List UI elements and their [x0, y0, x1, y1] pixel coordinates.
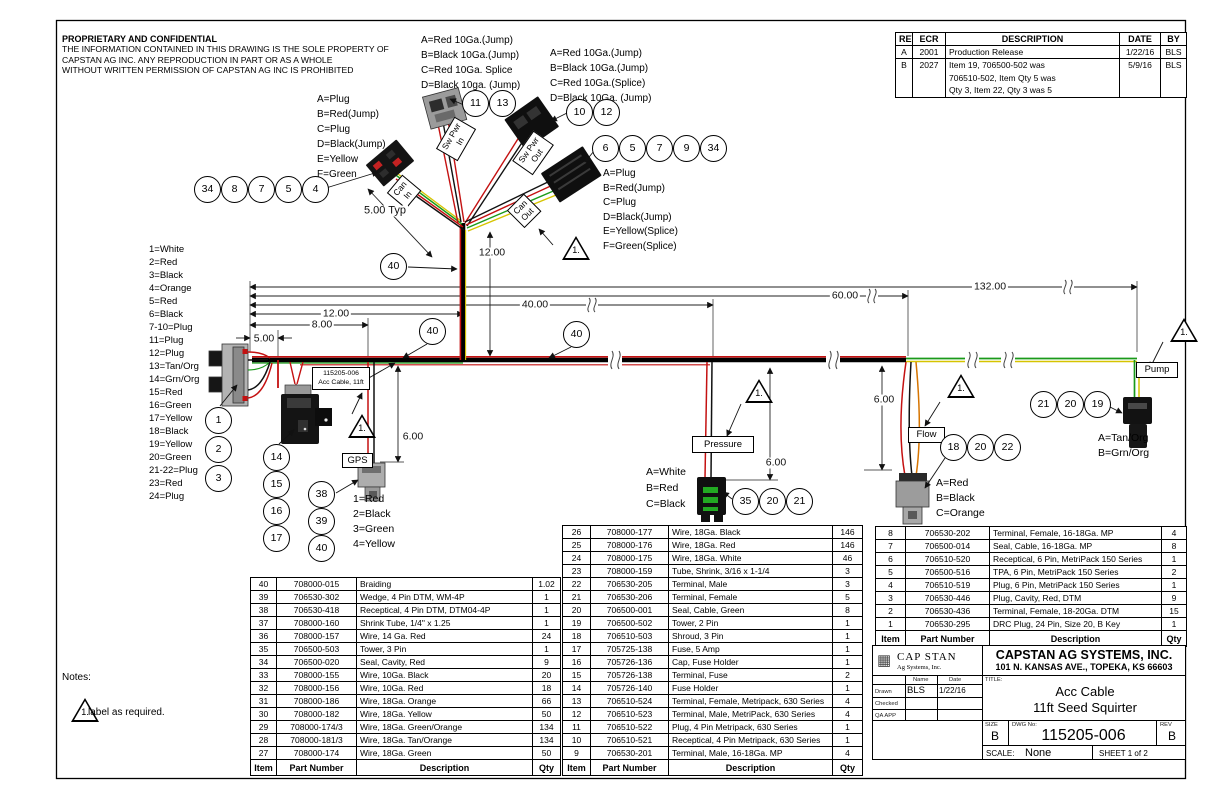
table-cell: Terminal, Female	[669, 591, 833, 604]
callout-circle-19: 19	[1084, 391, 1111, 418]
table-cell: 708000-160	[277, 617, 357, 630]
callout-group-gps: 383940	[308, 481, 335, 562]
table-cell: 706510-522	[591, 721, 669, 734]
table-cell: 7	[876, 540, 906, 553]
text-line: 2=Black	[353, 507, 395, 522]
table-cell: Wire, 14 Ga. Red	[357, 630, 533, 643]
flow-pin-labels: A=RedB=BlackC=Orange	[936, 476, 985, 521]
table-cell: Seal, Cavity, Red	[357, 656, 533, 669]
table-row: 13706510-524Terminal, Female, Metripack,…	[563, 695, 863, 708]
notice-line: CAPSTAN AG INC. ANY REPRODUCTION IN PART…	[62, 55, 427, 65]
table-cell: 708000-015	[277, 578, 357, 591]
callout-circle-38: 38	[308, 481, 335, 508]
table-cell: DESCRIPTION	[946, 33, 1120, 46]
table-cell: 706530-418	[277, 604, 357, 617]
table-row: 35706500-503Tower, 3 Pin1	[251, 643, 561, 656]
table-cell: 706500-001	[591, 604, 669, 617]
table-cell: 134	[533, 734, 561, 747]
table-cell: 1	[533, 617, 561, 630]
note-1-text: label as required.	[88, 707, 165, 718]
note-flag: 1.	[1170, 318, 1198, 342]
callout-group-fuse: 14151617	[263, 444, 290, 552]
table-cell: 706510-503	[591, 630, 669, 643]
text-line: D=Black(Jump)	[603, 211, 678, 226]
table-cell: 5	[833, 591, 863, 604]
callout-circle-8: 8	[221, 176, 248, 203]
table-cell: 38	[251, 604, 277, 617]
table-cell: Shroud, 3 Pin	[669, 630, 833, 643]
table-cell: Wire, 18Ga. White	[669, 552, 833, 565]
table-cell: REV	[896, 33, 913, 46]
table-cell: 12	[563, 708, 591, 721]
table-cell: 3	[876, 592, 906, 605]
callout-circle-22: 22	[994, 434, 1021, 461]
pressure-box: Pressure	[692, 436, 754, 453]
text-line: A=Plug	[603, 167, 678, 182]
table-cell: ECR	[913, 33, 946, 46]
table-cell: Wire, 18Ga. Orange	[357, 695, 533, 708]
table-cell: 706530-206	[591, 591, 669, 604]
table-cell: 20	[533, 669, 561, 682]
table-cell: 708000-155	[277, 669, 357, 682]
note-flag-number: 1.	[71, 707, 99, 717]
table-cell: 1	[833, 682, 863, 695]
text-line: B=Black 10Ga.(Jump)	[421, 48, 520, 63]
callout-group-sw-pwr-in: 1113	[462, 90, 516, 117]
table-cell: 23	[563, 565, 591, 578]
table-cell: 4	[1162, 527, 1187, 540]
table-row: 20706500-001Seal, Cable, Green8	[563, 604, 863, 617]
text-line: C=Orange	[936, 506, 985, 521]
size-cell: SIZE B	[982, 720, 1009, 746]
table-cell: 31	[251, 695, 277, 708]
table-row: REVECRDESCRIPTIONDATEBY	[896, 33, 1187, 46]
table-cell: Wire, 18Ga. Red	[669, 539, 833, 552]
text-line: C=Black	[646, 496, 686, 512]
dim-5-typ: 5.00 Typ	[362, 206, 408, 217]
table-cell: Wire, 18Ga. Tan/Orange	[357, 734, 533, 747]
pump-pin-labels: A=Tan/OrgB=Grn/Org	[1098, 431, 1149, 461]
text-line: 11=Plug	[149, 334, 199, 347]
pump-box: Pump	[1136, 362, 1178, 378]
note-flag-number: 1.	[562, 245, 590, 255]
table-cell: Item 19, 706500-502 was 706510-502, Item…	[946, 59, 1120, 97]
text-line: A=White	[646, 464, 686, 480]
table-cell: 46	[833, 552, 863, 565]
rev-label: REV	[1160, 722, 1172, 729]
table-cell: 3	[833, 578, 863, 591]
callout-circle-17: 17	[263, 525, 290, 552]
table-row: 33708000-155Wire, 10Ga. Black20	[251, 669, 561, 682]
table-cell: 706530-201	[591, 747, 669, 760]
callout-group-drc: 123	[205, 407, 232, 492]
company-name: CAPSTAN AG SYSTEMS, INC.	[983, 648, 1185, 662]
table-cell: Plug, 6 Pin, MetriPack 150 Series	[990, 579, 1162, 592]
table-cell: Terminal, Male	[669, 578, 833, 591]
table-cell: 708000-176	[591, 539, 669, 552]
text-line: A=Plug	[317, 92, 386, 107]
scale-cell: SCALE: None	[982, 745, 1093, 760]
table-row: 6706510-520Receptical, 6 Pin, MetriPack …	[876, 553, 1187, 566]
text-line: C=Plug	[317, 122, 386, 137]
company-info: CAPSTAN AG SYSTEMS, INC. 101 N. KANSAS A…	[982, 645, 1186, 676]
table-cell: BLS	[1161, 59, 1187, 97]
table-row: 36708000-157Wire, 14 Ga. Red24	[251, 630, 561, 643]
table-cell: Receptical, 4 Pin Metripack, 630 Series	[669, 734, 833, 747]
col-name-label: Name	[913, 677, 928, 684]
table-cell: 146	[833, 539, 863, 552]
table-cell: 10	[563, 734, 591, 747]
table-row: 1706530-295DRC Plug, 24 Pin, Size 20, B …	[876, 618, 1187, 631]
size-value: B	[991, 729, 999, 743]
table-cell: 21	[563, 591, 591, 604]
table-cell: 50	[533, 708, 561, 721]
table-cell: 9	[533, 656, 561, 669]
table-cell: Receptical, 6 Pin, MetriPack 150 Series	[990, 553, 1162, 566]
callout-circle-20: 20	[759, 488, 786, 515]
table-cell: 14	[563, 682, 591, 695]
table-cell: 706510-524	[591, 695, 669, 708]
table-cell: 4	[833, 695, 863, 708]
table-cell: 22	[563, 578, 591, 591]
table-cell: Receptical, 4 Pin DTM, DTM04-4P	[357, 604, 533, 617]
table-cell: 2	[1162, 566, 1187, 579]
table-cell: DRC Plug, 24 Pin, Size 20, B Key	[990, 618, 1162, 631]
text-line: 15=Red	[149, 386, 199, 399]
table-cell: 134	[533, 721, 561, 734]
logo-text: CAP STAN	[897, 651, 957, 663]
table-row: 22706530-205Terminal, Male3	[563, 578, 863, 591]
table-cell: Description	[669, 760, 833, 776]
table-cell: 705726-138	[591, 669, 669, 682]
table-cell: 4	[833, 708, 863, 721]
table-cell: Part Number	[277, 760, 357, 776]
gps-box: GPS	[342, 453, 373, 468]
table-cell: 708000-181/3	[277, 734, 357, 747]
text-line: B=Grn/Org	[1098, 446, 1149, 461]
callout-group-can-out: 657934	[592, 135, 727, 162]
table-row: 39706530-302Wedge, 4 Pin DTM, WM-4P1	[251, 591, 561, 604]
table-cell: 4	[876, 579, 906, 592]
notes-title: Notes:	[62, 672, 91, 683]
text-line: 7-10=Plug	[149, 321, 199, 334]
table-cell: B	[896, 59, 913, 97]
drawing-canvas: PROPRIETARY AND CONFIDENTIAL THE INFORMA…	[0, 0, 1224, 792]
table-cell: 1	[533, 591, 561, 604]
table-row: 25708000-176Wire, 18Ga. Red146	[563, 539, 863, 552]
text-line: 18=Black	[149, 425, 199, 438]
table-cell: 706530-446	[906, 592, 990, 605]
table-cell: 35	[251, 643, 277, 656]
dwg-no-cell: DWG No: 115205-006	[1008, 720, 1157, 746]
table-cell: 15	[563, 669, 591, 682]
table-cell: Tower, 2 Pin	[669, 617, 833, 630]
table-row: 8706530-202Terminal, Female, 16-18Ga. MP…	[876, 527, 1187, 540]
table-cell: Item	[251, 760, 277, 776]
table-cell: 2027	[913, 59, 946, 97]
table-cell: DATE	[1120, 33, 1161, 46]
table-cell: 24	[563, 552, 591, 565]
table-row: 14705726-140Fuse Holder1	[563, 682, 863, 695]
table-cell: 1/22/16	[1120, 46, 1161, 59]
text-line: C=Red 10Ga. Splice	[421, 63, 520, 78]
text-line: B=Black	[936, 491, 985, 506]
divider	[905, 676, 906, 721]
table-cell: 9	[1162, 592, 1187, 605]
table-row: 4706510-519Plug, 6 Pin, MetriPack 150 Se…	[876, 579, 1187, 592]
table-cell: 1	[876, 618, 906, 631]
callout-circle-40: 40	[308, 535, 335, 562]
bom-table-items-27-40: 40708000-015Braiding1.0239706530-302Wedg…	[250, 577, 561, 776]
table-row: 38706530-418Receptical, 4 Pin DTM, DTM04…	[251, 604, 561, 617]
table-cell: Terminal, Female, 18-20Ga. DTM	[990, 605, 1162, 618]
table-cell: 66	[533, 695, 561, 708]
text-line: 20=Green	[149, 451, 199, 464]
qa-label: QA APP	[875, 713, 896, 720]
bom-table-items-1-8: 8706530-202Terminal, Female, 16-18Ga. MP…	[875, 526, 1187, 647]
table-cell: Terminal, Female, Metripack, 630 Series	[669, 695, 833, 708]
table-cell: Wire, 10Ga. Red	[357, 682, 533, 695]
table-row: 9706530-201Terminal, Male, 16-18Ga. MP4	[563, 747, 863, 760]
table-cell: Qty	[833, 760, 863, 776]
table-cell: 1	[833, 630, 863, 643]
text-line: D=Black(Jump)	[317, 137, 386, 152]
table-cell: 708000-182	[277, 708, 357, 721]
table-cell: 24	[533, 630, 561, 643]
table-cell: 25	[563, 539, 591, 552]
cable-tag-number: 115205-006	[314, 370, 368, 379]
table-cell: 146	[833, 526, 863, 539]
callout-circle-11: 11	[462, 90, 489, 117]
table-row: 24708000-175Wire, 18Ga. White46	[563, 552, 863, 565]
callout-circle-21: 21	[786, 488, 813, 515]
table-cell: 50	[533, 747, 561, 760]
table-cell: BY	[1161, 33, 1187, 46]
table-row: 7706500-014Seal, Cable, 16-18Ga. MP8	[876, 540, 1187, 553]
table-cell: 18	[533, 682, 561, 695]
table-cell: 16	[563, 656, 591, 669]
table-cell: 1	[833, 721, 863, 734]
text-line: 4=Yellow	[353, 537, 395, 552]
note-flag: 1.	[562, 236, 590, 260]
table-cell: A	[896, 46, 913, 59]
table-cell: Wire, 18Ga. Yellow	[357, 708, 533, 721]
text-line: B=Red	[646, 480, 686, 496]
table-cell: 1	[833, 734, 863, 747]
dim-trunk-12: 12.00	[477, 248, 507, 259]
note-flag: 1.	[71, 698, 99, 722]
table-cell: 706500-020	[277, 656, 357, 669]
table-cell: 706510-520	[906, 553, 990, 566]
drawn-label: Drawn	[875, 689, 892, 696]
title-label: TITLE:	[985, 677, 1002, 684]
text-line: 23=Red	[149, 477, 199, 490]
notice-title: PROPRIETARY AND CONFIDENTIAL	[62, 34, 427, 44]
drawing-title-line1: Acc Cable	[983, 684, 1186, 699]
pressure-connector	[697, 477, 726, 522]
table-cell: Fuse, 5 Amp	[669, 643, 833, 656]
text-line: B=Black 10Ga.(Jump)	[550, 61, 651, 76]
text-line: 14=Grn/Org	[149, 373, 199, 386]
revision-table: REVECRDESCRIPTIONDATEBYA2001Production R…	[895, 32, 1187, 98]
table-cell: 1	[833, 617, 863, 630]
table-cell: 706500-502	[591, 617, 669, 630]
divider	[873, 709, 983, 710]
dwg-no-value: 115205-006	[1009, 727, 1157, 745]
callout-circle-3: 3	[205, 465, 232, 492]
table-cell: 708000-156	[277, 682, 357, 695]
table-cell: 3	[833, 565, 863, 578]
note-flag: 1.	[348, 414, 376, 438]
dim-pressure-6: 6.00	[764, 458, 788, 469]
text-line: 2=Red	[149, 256, 199, 269]
text-line: 3=Black	[149, 269, 199, 282]
flow-connector	[896, 473, 929, 524]
callout-circle-16: 16	[263, 498, 290, 525]
table-cell: 708000-174	[277, 747, 357, 760]
table-cell: 706530-205	[591, 578, 669, 591]
table-cell: Terminal, Male, MetriPack, 630 Series	[669, 708, 833, 721]
note-flag-number: 1.	[1170, 327, 1198, 337]
callout-circle-34: 34	[194, 176, 221, 203]
title-block: ▦ CAP STAN Ag Systems, Inc. CAPSTAN AG S…	[872, 645, 1186, 760]
table-cell: 1	[833, 656, 863, 669]
table-cell: 706530-302	[277, 591, 357, 604]
table-row: 11706510-522Plug, 4 Pin Metripack, 630 S…	[563, 721, 863, 734]
table-cell: 26	[563, 526, 591, 539]
table-cell: 9	[563, 747, 591, 760]
title-cell: TITLE: Acc Cable 11ft Seed Squirter	[982, 675, 1186, 721]
sw-pwr-in-jump-labels: A=Red 10Ga.(Jump)B=Black 10Ga.(Jump)C=Re…	[421, 33, 520, 93]
drawn-name: BLS	[907, 685, 925, 696]
drawn-date: 1/22/16	[939, 686, 966, 695]
table-cell: 706500-014	[906, 540, 990, 553]
callout-circle-39: 39	[308, 508, 335, 535]
notice-line: THE INFORMATION CONTAINED IN THIS DRAWIN…	[62, 44, 427, 54]
text-line: 3=Green	[353, 522, 395, 537]
table-cell: 37	[251, 617, 277, 630]
table-cell: 8	[833, 604, 863, 617]
table-cell: Plug, Cavity, Red, DTM	[990, 592, 1162, 605]
table-cell: 8	[876, 527, 906, 540]
empty-cell	[872, 720, 983, 760]
table-cell: 36	[251, 630, 277, 643]
callout-circle-15: 15	[263, 471, 290, 498]
text-line: 5=Red	[149, 295, 199, 308]
callout-group-flow: 182022	[940, 434, 1021, 461]
table-row: ItemPart NumberDescriptionQty	[563, 760, 863, 776]
table-cell: Part Number	[591, 760, 669, 776]
callout-circle-12: 12	[593, 99, 620, 126]
table-cell: Wedge, 4 Pin DTM, WM-4P	[357, 591, 533, 604]
text-line: 1=Red	[353, 492, 395, 507]
table-cell: 706510-523	[591, 708, 669, 721]
callout-circle-4: 4	[302, 176, 329, 203]
table-cell: Production Release	[946, 46, 1120, 59]
table-cell: 30	[251, 708, 277, 721]
table-cell: 11	[563, 721, 591, 734]
callout-braiding-3: 40	[563, 321, 590, 348]
table-row: 27708000-174Wire, 18Ga. Green50	[251, 747, 561, 760]
table-cell: 27	[251, 747, 277, 760]
drawing-title-line2: 11ft Seed Squirter	[983, 700, 1186, 715]
table-row: 21706530-206Terminal, Female5	[563, 591, 863, 604]
text-line: C=Red 10Ga.(Splice)	[550, 76, 651, 91]
callout-circle-34: 34	[700, 135, 727, 162]
callout-circle-2: 2	[205, 436, 232, 463]
dim-8: 8.00	[310, 320, 334, 331]
table-row: 12706510-523Terminal, Male, MetriPack, 6…	[563, 708, 863, 721]
table-cell: 708000-175	[591, 552, 669, 565]
capstan-logo-icon: ▦	[877, 651, 891, 669]
table-cell: 40	[251, 578, 277, 591]
table-cell: 6	[876, 553, 906, 566]
table-row: 34706500-020Seal, Cavity, Red9	[251, 656, 561, 669]
text-line: E=Yellow	[317, 152, 386, 167]
table-cell: 705726-136	[591, 656, 669, 669]
table-cell: 706500-516	[906, 566, 990, 579]
table-cell: 706530-202	[906, 527, 990, 540]
callout-circle-10: 10	[566, 99, 593, 126]
table-cell: 18	[563, 630, 591, 643]
table-cell: 39	[251, 591, 277, 604]
callout-circle-13: 13	[489, 90, 516, 117]
table-cell: Tower, 3 Pin	[357, 643, 533, 656]
table-row: 31708000-186Wire, 18Ga. Orange66	[251, 695, 561, 708]
text-line: A=Red	[936, 476, 985, 491]
table-row: 29708000-174/3Wire, 18Ga. Green/Orange13…	[251, 721, 561, 734]
callout-circle-20: 20	[1057, 391, 1084, 418]
note-flag-number: 1.	[947, 383, 975, 393]
table-cell: Shrink Tube, 1/4" x 1.25	[357, 617, 533, 630]
scale-value: None	[1025, 747, 1051, 759]
table-cell: Tube, Shrink, 3/16 x 1-1/4	[669, 565, 833, 578]
text-line: 24=Plug	[149, 490, 199, 503]
table-cell: 17	[563, 643, 591, 656]
callout-circle-14: 14	[263, 444, 290, 471]
table-cell: 708000-186	[277, 695, 357, 708]
table-cell: Braiding	[357, 578, 533, 591]
table-cell: 5/9/16	[1120, 59, 1161, 97]
notice-line: WITHOUT WRITTEN PERMISSION OF CAPSTAN AG…	[62, 65, 427, 75]
table-cell: 1	[833, 643, 863, 656]
text-line: 13=Tan/Org	[149, 360, 199, 373]
text-line: 19=Yellow	[149, 438, 199, 451]
callout-circle-18: 18	[940, 434, 967, 461]
text-line: 1=White	[149, 243, 199, 256]
callout-circle-1: 1	[205, 407, 232, 434]
table-cell: 705725-138	[591, 643, 669, 656]
table-cell: Fuse Holder	[669, 682, 833, 695]
table-cell: 1	[1162, 553, 1187, 566]
table-cell: 1	[1162, 579, 1187, 592]
table-cell: 1.02	[533, 578, 561, 591]
table-cell: Wire, 18Ga. Black	[669, 526, 833, 539]
table-cell: 1	[1162, 618, 1187, 631]
table-cell: 706530-295	[906, 618, 990, 631]
table-cell: 29	[251, 721, 277, 734]
callout-circle-7: 7	[248, 176, 275, 203]
text-line: B=Red(Jump)	[317, 107, 386, 122]
table-row: 3706530-446Plug, Cavity, Red, DTM9	[876, 592, 1187, 605]
callout-braiding-1: 40	[380, 253, 407, 280]
table-cell: Terminal, Male, 16-18Ga. MP	[669, 747, 833, 760]
note-flag-number: 1.	[348, 423, 376, 433]
table-cell: Seal, Cable, 16-18Ga. MP	[990, 540, 1162, 553]
table-row: 5706500-516TPA, 6 Pin, MetriPack 150 Ser…	[876, 566, 1187, 579]
table-cell: Wire, 10Ga. Black	[357, 669, 533, 682]
text-line: 21-22=Plug	[149, 464, 199, 477]
